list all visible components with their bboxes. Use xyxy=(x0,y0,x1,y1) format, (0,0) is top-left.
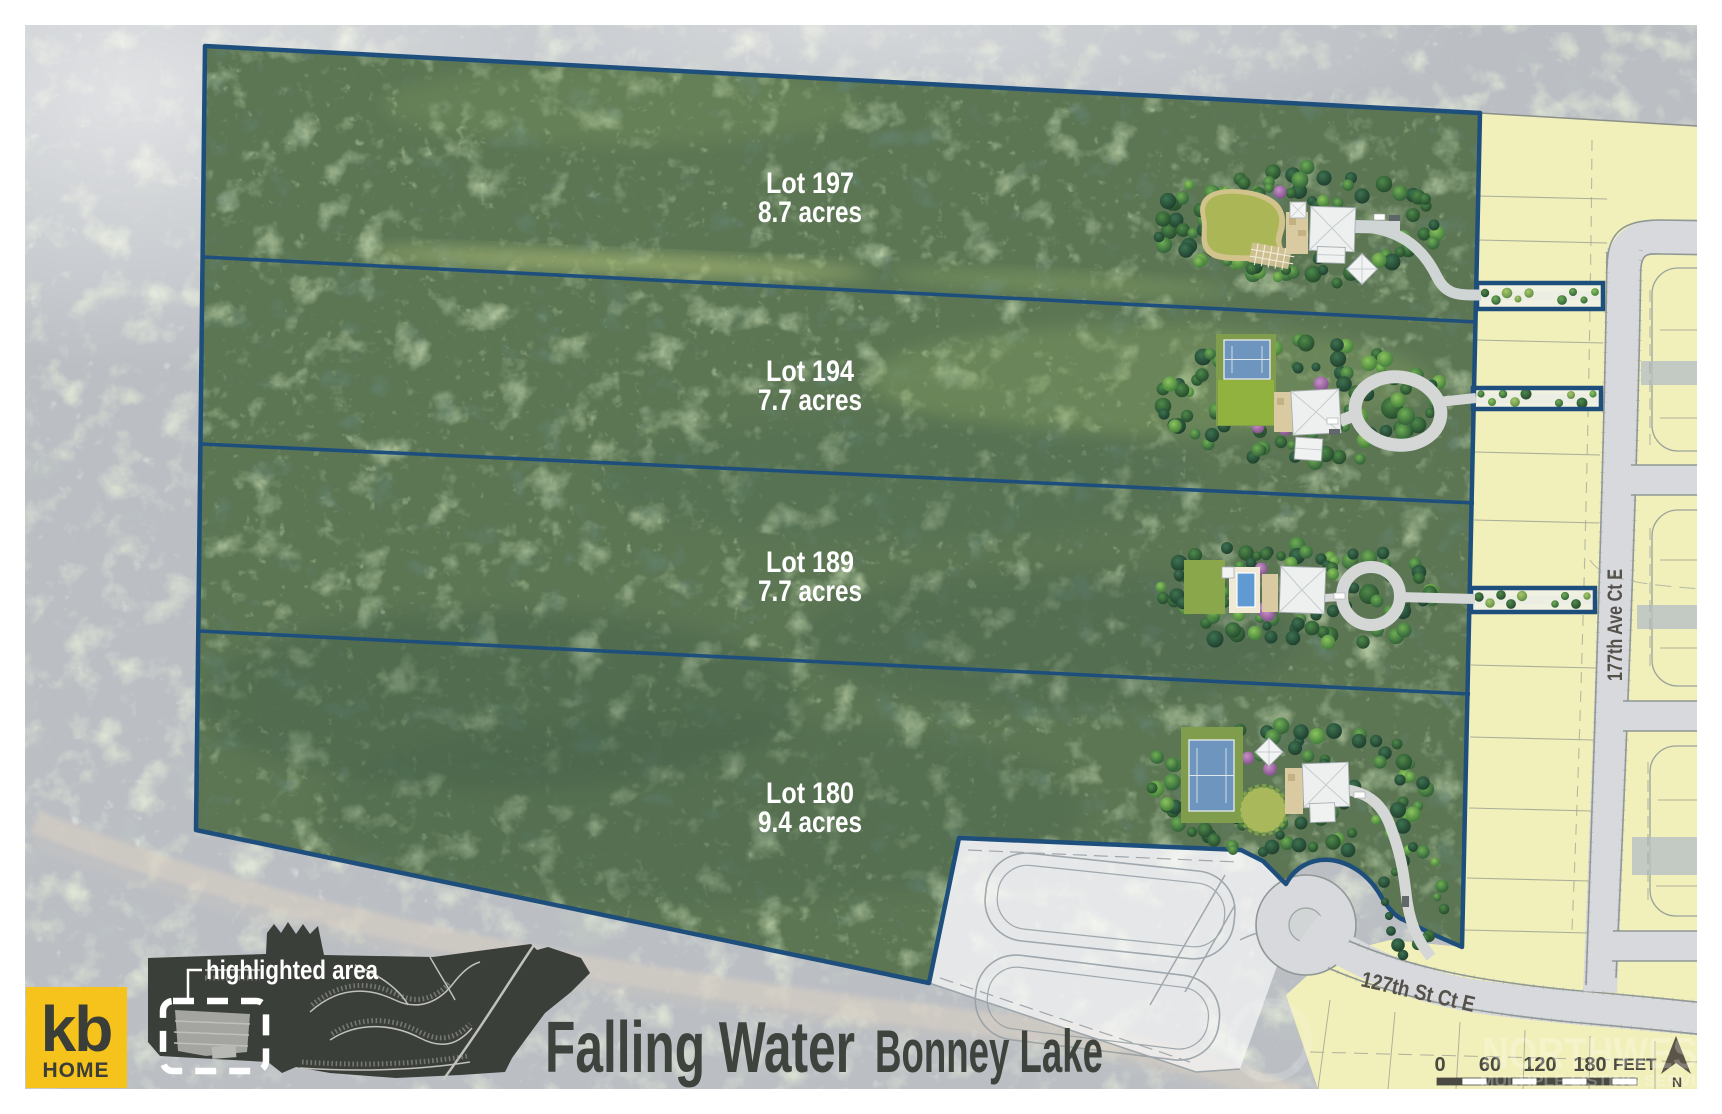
svg-text:MULTIPLE LISTING SERVICE: MULTIPLE LISTING SERVICE xyxy=(1480,1073,1720,1090)
svg-text:HOME: HOME xyxy=(43,1059,110,1082)
svg-text:Bonney Lake: Bonney Lake xyxy=(875,1018,1103,1085)
svg-text:7.7 acres: 7.7 acres xyxy=(758,575,862,608)
svg-text:NORTHWEST: NORTHWEST xyxy=(1482,1029,1720,1078)
svg-text:8.7 acres: 8.7 acres xyxy=(758,196,862,229)
svg-text:kb: kb xyxy=(41,993,112,1065)
svg-text:177th Ave Ct E: 177th Ave Ct E xyxy=(1604,569,1627,681)
svg-text:highlighted area: highlighted area xyxy=(206,955,379,985)
svg-text:7.7 acres: 7.7 acres xyxy=(758,384,862,417)
svg-text:0: 0 xyxy=(1434,1054,1445,1076)
svg-text:9.4 acres: 9.4 acres xyxy=(758,806,862,839)
svg-text:Falling Water: Falling Water xyxy=(545,1008,855,1088)
